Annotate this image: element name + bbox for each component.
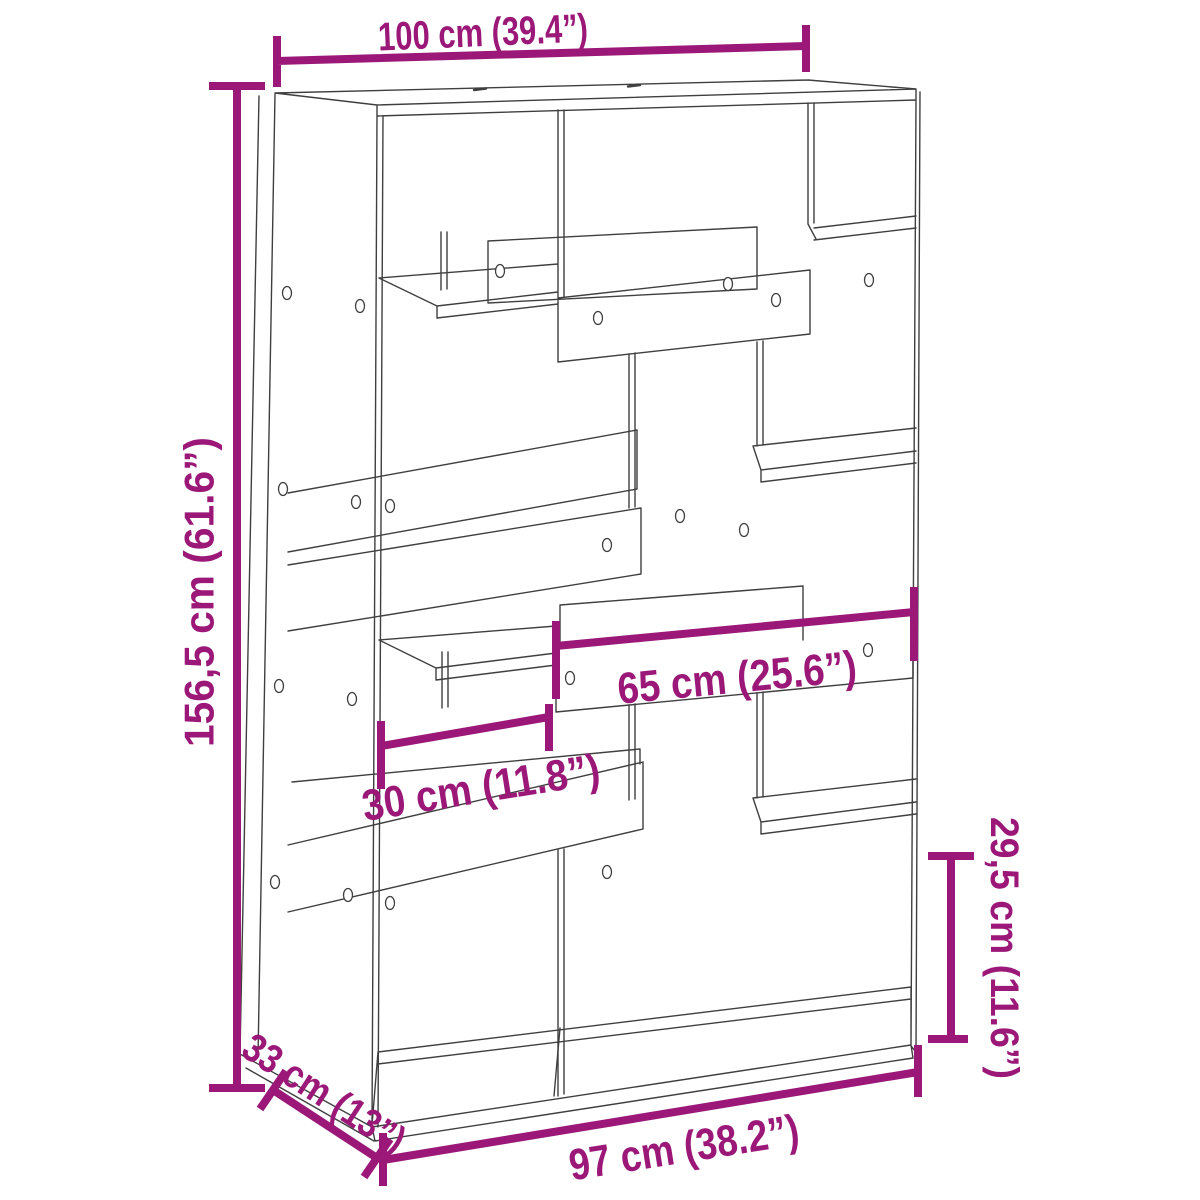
dimension-middle-shelf-width: 65 cm (25.6”) (556, 587, 914, 714)
dimension-top-width: 100 cm (39.4”) (277, 6, 806, 87)
dimension-diagram-page: 100 cm (39.4”) 156,5 cm (61.6”) 65 cm (2… (0, 0, 1200, 1200)
dimension-left-height: 156,5 cm (61.6”) (176, 86, 266, 1088)
bookcase-line-art (240, 80, 920, 1141)
row-e-divider (558, 849, 564, 1096)
dimension-bottom-width: 97 cm (38.2”) (383, 1045, 918, 1190)
dimension-right-compartment-height-label: 29,5 cm (11.6”) (982, 817, 1026, 1079)
dimension-bottom-width-label: 97 cm (38.2”) (566, 1106, 803, 1191)
dimension-middle-shelf-width-label: 65 cm (25.6”) (615, 642, 859, 714)
row-a-shelves (379, 103, 916, 362)
bookcase-dimension-diagram: 100 cm (39.4”) 156,5 cm (61.6”) 65 cm (2… (0, 0, 1200, 1200)
dimension-right-compartment-height: 29,5 cm (11.6”) (928, 817, 1026, 1079)
dimension-left-compartment-width-label: 30 cm (11.8”) (359, 745, 604, 831)
dimension-top-width-label: 100 cm (39.4”) (377, 6, 589, 59)
dimension-left-height-label: 156,5 cm (61.6”) (176, 437, 223, 747)
dimension-right-compartment-height-line (928, 856, 974, 1039)
dimension-left-compartment-width: 30 cm (11.8”) (359, 704, 604, 831)
